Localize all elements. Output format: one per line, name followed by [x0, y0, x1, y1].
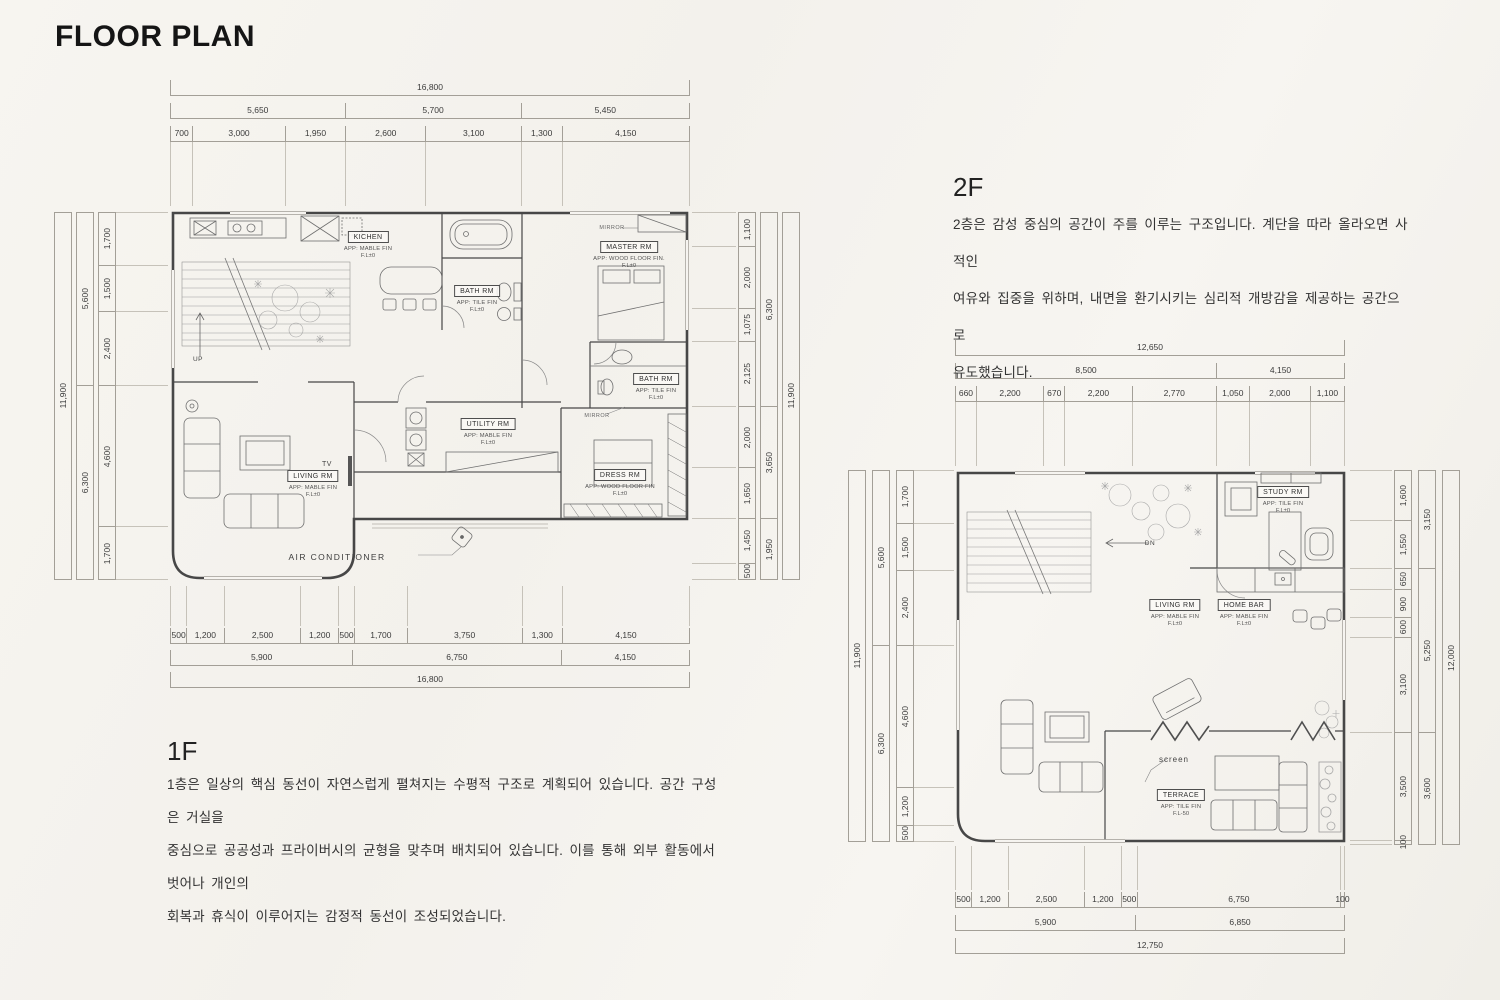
dim-segment: 1,300 — [521, 126, 562, 141]
dim-label: 3,600 — [1423, 778, 1432, 799]
dim-segment: 1,200 — [971, 892, 1008, 907]
dim-tick: 500 — [914, 825, 954, 842]
room-level: F.L±0 — [1276, 508, 1290, 514]
tv-annotation: TV — [322, 461, 332, 468]
room-level: F.L±0 — [361, 253, 375, 259]
dim-label: 500 — [901, 826, 910, 840]
dim-segment: 500 — [897, 825, 913, 842]
dim-label: 500 — [1122, 895, 1136, 904]
dim-label: 4,150 — [615, 129, 636, 138]
dim-label: 5,900 — [251, 653, 272, 662]
dim-label: 4,600 — [901, 706, 910, 727]
dim-segment: 100 — [1395, 840, 1411, 845]
floor-plan-sheet: FLOOR PLAN — [0, 0, 1500, 1000]
dims-1f-right-group: 6,3003,6501,950 — [760, 212, 778, 580]
dim-label: 1,950 — [305, 129, 326, 138]
dim-tick: 100 — [1350, 840, 1392, 845]
dim-segment: 1,950 — [761, 518, 777, 580]
dim-tick: 1,100 — [1310, 402, 1345, 466]
room-name: LIVING RM — [1149, 599, 1200, 611]
floor2-doors — [1217, 570, 1245, 598]
floor1-heading: 1F — [167, 736, 197, 767]
dim-tick: 2,400 — [116, 311, 168, 385]
room-name: TERRACE — [1157, 789, 1205, 801]
dim-tick: 3,500 — [1350, 732, 1392, 840]
dim-segment: 1,950 — [285, 126, 345, 141]
room-label-bath-2: BATH RMAPP: TILE FINF.L±0 — [633, 373, 679, 401]
dim-segment: 6,750 — [1137, 892, 1340, 907]
dim-tick: 1,700 — [914, 470, 954, 523]
room-finish: APP: TILE FIN — [636, 388, 677, 394]
dim-tick: 1,300 — [521, 142, 562, 206]
dim-label: 1,300 — [532, 631, 553, 640]
dims-2f-left-ticks: 1,7001,5002,4004,6001,200500 — [914, 470, 954, 842]
dim-tick: 1,950 — [285, 142, 345, 206]
dim-tick: 4,150 — [562, 586, 690, 626]
room-name: BATH RM — [633, 373, 679, 385]
dim-tick: 2,500 — [224, 586, 301, 626]
dim-label: 1,075 — [743, 314, 752, 335]
dim-segment: 500 — [955, 892, 971, 907]
dim-label: 5,650 — [247, 106, 268, 115]
page-title: FLOOR PLAN — [55, 20, 255, 54]
dim-label: 2,400 — [103, 338, 112, 359]
dim-segment: 5,600 — [77, 212, 93, 385]
dim-label: 1,550 — [1399, 534, 1408, 555]
dim-segment: 1,550 — [1395, 520, 1411, 568]
dim-label: 4,150 — [615, 653, 636, 662]
mirror-annotation-mid: MIRROR — [584, 413, 609, 419]
room-name: STUDY RM — [1257, 486, 1309, 498]
dim-label: 500 — [339, 631, 353, 640]
dim-tick: 900 — [1350, 589, 1392, 617]
dim-tick: 670 — [1043, 402, 1064, 466]
dim-label: 3,100 — [1399, 674, 1408, 695]
dim-segment: 1,500 — [99, 265, 115, 312]
dim-label: 5,900 — [1035, 918, 1056, 927]
dim-tick: 2,500 — [1008, 846, 1084, 890]
room-name: BATH RM — [454, 285, 500, 297]
dim-segment: 5,450 — [521, 103, 690, 118]
dim-segment: 500 — [170, 628, 186, 643]
room-label-utility: UTILITY RMAPP: MABLE FINF.L±0 — [461, 418, 516, 446]
dim-label: 1,200 — [979, 895, 1000, 904]
air-conditioner-annotation: AIR CONDITIONER — [288, 552, 385, 562]
room-label-bath-1: BATH RMAPP: TILE FINF.L±0 — [454, 285, 500, 313]
dims-1f-top-detail: 7003,0001,9502,6003,1001,3004,150 — [170, 126, 690, 142]
dim-tick: 1,500 — [116, 265, 168, 312]
dim-tick: 1,200 — [300, 586, 337, 626]
dim-tick: 1,075 — [692, 308, 736, 341]
dim-tick: 4,600 — [914, 645, 954, 787]
dims-2f-right-ticks: 1,6001,5506509006003,1003,500100 — [1350, 470, 1392, 845]
room-finish: APP: MABLE FIN — [464, 433, 512, 439]
room-finish: APP: WOOD FLOOR FIN — [585, 484, 655, 490]
dim-label: 6,750 — [446, 653, 467, 662]
dim-segment: 1,200 — [186, 628, 223, 643]
dim-tick: 1,050 — [1216, 402, 1249, 466]
dims-1f-bottom-ticks: 5001,2002,5001,2005001,7003,7501,3004,15… — [170, 586, 690, 626]
dim-segment: 5,600 — [873, 470, 889, 645]
dim-segment: 4,600 — [99, 385, 115, 526]
dims-1f-bottom-group: 5,9006,7504,150 — [170, 650, 690, 666]
dim-label: 500 — [956, 895, 970, 904]
dim-tick: 1,700 — [354, 586, 407, 626]
dim-label: 700 — [175, 129, 189, 138]
dim-segment: 6,300 — [761, 212, 777, 406]
dim-label: 6,300 — [765, 299, 774, 320]
room-finish: APP: MABLE FIN — [1151, 614, 1199, 620]
dim-tick: 4,150 — [562, 142, 690, 206]
room-level: F.L-50 — [1173, 811, 1189, 817]
room-label-dress: DRESS RMAPP: WOOD FLOOR FINF.L±0 — [585, 469, 655, 497]
room-finish: APP: TILE FIN — [1161, 804, 1202, 810]
dim-tick: 1,200 — [971, 846, 1008, 890]
dim-label: 5,700 — [422, 106, 443, 115]
dim-segment: 500 — [1121, 892, 1137, 907]
dim-tick: 3,100 — [425, 142, 520, 206]
dims-2f-left-detail: 1,7001,5002,4004,6001,200500 — [896, 470, 914, 842]
room-label-home-bar: HOME BARAPP: MABLE FINF.L±0 — [1218, 599, 1271, 627]
dim-tick: 500 — [338, 586, 354, 626]
dim-label: 12,000 — [1447, 645, 1456, 671]
dim-tick: 2,400 — [914, 570, 954, 645]
dim-segment: 4,600 — [897, 645, 913, 787]
dims-1f-bottom-detail: 5001,2002,5001,2005001,7003,7501,3004,15… — [170, 628, 690, 644]
dim-label: 6,300 — [877, 733, 886, 754]
dim-tick: 2,000 — [692, 406, 736, 467]
dim-segment: 6,750 — [352, 650, 560, 665]
dim-label: 1,700 — [103, 543, 112, 564]
dim-segment: 3,100 — [425, 126, 520, 141]
dim-segment: 1,200 — [300, 628, 337, 643]
room-label-living-1f: LIVING RMAPP: MABLE FINF.L±0 — [287, 470, 338, 498]
dim-segment: 500 — [338, 628, 354, 643]
dim-label: 12,750 — [1137, 941, 1163, 950]
dim-label: 4,150 — [615, 631, 636, 640]
dim-tick: 2,125 — [692, 341, 736, 406]
dim-segment: 5,900 — [170, 650, 352, 665]
dim-segment: 1,700 — [354, 628, 407, 643]
dim-label: 1,100 — [743, 219, 752, 240]
dim-label: 2,500 — [1036, 895, 1057, 904]
dim-label: 3,150 — [1423, 509, 1432, 530]
dim-label: 500 — [171, 631, 185, 640]
dim-tick: 1,200 — [914, 787, 954, 825]
floor2-terrace-furniture — [1211, 756, 1341, 832]
dim-tick: 2,770 — [1132, 402, 1216, 466]
dim-segment: 2,000 — [739, 246, 755, 307]
dim-tick: 1,100 — [692, 212, 736, 246]
dim-segment: 3,750 — [407, 628, 522, 643]
floor2-stairs — [967, 510, 1148, 594]
dim-label: 11,900 — [59, 383, 68, 408]
dim-segment: 3,150 — [1419, 470, 1435, 568]
dim-label: 2,600 — [375, 129, 396, 138]
dim-segment: 2,400 — [99, 311, 115, 385]
dim-label: 1,700 — [103, 228, 112, 249]
dim-label: 2,125 — [743, 363, 752, 384]
dims-2f-right-total: 12,000 — [1442, 470, 1460, 845]
dim-label: 1,200 — [309, 631, 330, 640]
dim-tick: 1,200 — [186, 586, 223, 626]
dim-label: 16,800 — [417, 675, 443, 684]
dim-tick: 500 — [692, 563, 736, 580]
dim-segment: 1,600 — [1395, 470, 1411, 520]
dim-tick: 2,600 — [345, 142, 425, 206]
dim-segment: 2,500 — [224, 628, 301, 643]
room-name: MASTER RM — [600, 241, 658, 253]
dims-2f-bottom-total: 12,750 — [955, 938, 1345, 954]
dim-label: 3,100 — [463, 129, 484, 138]
dim-label: 500 — [743, 564, 752, 578]
dim-label: 650 — [1399, 572, 1408, 586]
dim-tick: 500 — [170, 586, 186, 626]
floor2-windows — [957, 472, 1346, 843]
floor1-plants — [254, 280, 335, 343]
dim-label: 6,750 — [1228, 895, 1249, 904]
floor2-plan-drawing — [955, 470, 1347, 845]
dim-segment: 3,100 — [1395, 637, 1411, 733]
dims-1f-top-total: 16,800 — [170, 80, 690, 96]
screen-annotation: screen — [1159, 755, 1189, 764]
floor2-heading: 2F — [953, 172, 983, 203]
dim-segment: 3,650 — [761, 406, 777, 519]
dims-2f-right-group: 3,1505,2503,600 — [1418, 470, 1436, 845]
dim-tick: 600 — [1350, 617, 1392, 636]
dim-label: 2,400 — [901, 597, 910, 618]
dim-tick: 2,000 — [1249, 402, 1310, 466]
dim-segment: 5,900 — [955, 915, 1135, 930]
room-level: F.L±0 — [622, 263, 636, 269]
room-level: F.L±0 — [649, 395, 663, 401]
room-finish: APP: WOOD FLOOR FIN. — [593, 256, 665, 262]
dim-segment: 3,600 — [1419, 732, 1435, 845]
dim-segment: 1,300 — [522, 628, 562, 643]
dims-2f-bottom-group: 5,9006,850 — [955, 915, 1345, 931]
dim-label: 16,800 — [417, 83, 443, 92]
dim-segment: 700 — [170, 126, 192, 141]
dims-2f-bottom-ticks: 5001,2002,5001,2005006,750100 — [955, 846, 1345, 890]
dim-label: 6,300 — [81, 472, 90, 493]
dim-tick: 4,600 — [116, 385, 168, 526]
room-name: UTILITY RM — [461, 418, 516, 430]
dim-segment: 2,500 — [1008, 892, 1084, 907]
dim-tick: 3,750 — [407, 586, 522, 626]
dim-label: 900 — [1399, 597, 1408, 611]
dim-segment: 2,125 — [739, 341, 755, 406]
dim-label: 4,600 — [103, 446, 112, 467]
dim-tick: 1,450 — [692, 518, 736, 563]
floor1-leader-lines — [418, 228, 638, 555]
dim-label: 11,900 — [853, 643, 862, 668]
room-name: LIVING RM — [287, 470, 338, 482]
dim-label: 11,900 — [787, 383, 796, 408]
dims-2f-bottom-detail: 5001,2002,5001,2005006,750100 — [955, 892, 1345, 908]
room-finish: APP: TILE FIN — [457, 300, 498, 306]
dim-tick: 700 — [170, 142, 192, 206]
dim-segment: 12,750 — [955, 938, 1345, 953]
dim-tick: 3,000 — [192, 142, 284, 206]
dim-label: 3,750 — [454, 631, 475, 640]
dim-label: 600 — [1399, 620, 1408, 634]
dim-label: 100 — [1399, 835, 1408, 849]
room-label-study: STUDY RMAPP: TILE FINF.L±0 — [1257, 486, 1309, 514]
floor2-description: 2층은 감성 중심의 공간이 주를 이루는 구조입니다. 계단을 따라 올라오면… — [953, 206, 1408, 391]
dim-tick: 100 — [1340, 846, 1345, 890]
room-label-kichen: KICHENAPP: MABLE FINF.L±0 — [344, 231, 392, 259]
dim-segment: 12,000 — [1443, 470, 1459, 845]
dim-segment: 1,450 — [739, 518, 755, 563]
room-label-living-2f: LIVING RMAPP: MABLE FINF.L±0 — [1149, 599, 1200, 627]
dim-segment: 1,200 — [897, 787, 913, 825]
dims-1f-top-group: 5,6505,7005,450 — [170, 103, 690, 119]
floor1-master-furniture — [598, 215, 686, 340]
dims-2f-left-group: 5,6006,300 — [872, 470, 890, 842]
dim-tick: 1,550 — [1350, 520, 1392, 568]
dim-tick: 6,750 — [1137, 846, 1340, 890]
dim-tick: 2,200 — [976, 402, 1043, 466]
dim-segment: 1,650 — [739, 467, 755, 518]
dims-2f-top-ticks: 6602,2006702,2002,7701,0502,0001,100 — [955, 402, 1345, 466]
floor2-walls — [958, 473, 1344, 841]
dim-segment: 11,900 — [783, 212, 799, 580]
dim-segment: 5,250 — [1419, 568, 1435, 731]
dim-tick: 1,200 — [1084, 846, 1121, 890]
dim-label: 5,600 — [81, 288, 90, 309]
dim-label: 100 — [1335, 895, 1349, 904]
dim-label: 1,650 — [743, 483, 752, 504]
dim-label: 1,500 — [901, 537, 910, 558]
dim-segment: 3,000 — [192, 126, 284, 141]
dim-segment: 600 — [1395, 617, 1411, 636]
dim-segment: 1,075 — [739, 308, 755, 341]
dim-label: 1,200 — [1092, 895, 1113, 904]
dim-segment: 4,150 — [562, 628, 690, 643]
dim-tick: 2,000 — [692, 246, 736, 307]
dim-tick: 650 — [1350, 568, 1392, 589]
dim-label: 6,850 — [1229, 918, 1250, 927]
dim-label: 1,700 — [901, 486, 910, 507]
dim-label: 1,300 — [531, 129, 552, 138]
dim-segment: 1,700 — [99, 212, 115, 265]
dims-1f-right-ticks: 1,1002,0001,0752,1252,0001,6501,450500 — [692, 212, 736, 580]
dim-tick: 660 — [955, 402, 976, 466]
dim-segment: 1,100 — [739, 212, 755, 246]
dims-1f-left-group: 5,6006,300 — [76, 212, 94, 580]
dim-segment: 900 — [1395, 589, 1411, 617]
dim-segment: 6,300 — [77, 385, 93, 580]
dim-tick: 1,650 — [692, 467, 736, 518]
dim-tick: 1,600 — [1350, 470, 1392, 520]
dims-1f-left-total: 11,900 — [54, 212, 72, 580]
dim-segment: 650 — [1395, 568, 1411, 589]
room-finish: APP: MABLE FIN — [344, 246, 392, 252]
dim-label: 2,500 — [252, 631, 273, 640]
dim-label: 5,250 — [1423, 640, 1432, 661]
dim-segment: 2,400 — [897, 570, 913, 645]
dim-segment: 1,500 — [897, 523, 913, 570]
dim-segment: 16,800 — [170, 672, 690, 687]
dim-segment: 6,300 — [873, 645, 889, 842]
dims-1f-top-ticks: 7003,0001,9502,6003,1001,3004,150 — [170, 142, 690, 206]
dim-segment: 4,150 — [561, 650, 690, 665]
dim-label: 1,950 — [765, 539, 774, 560]
dim-segment: 100 — [1340, 892, 1345, 907]
dim-label: 5,600 — [877, 547, 886, 568]
room-level: F.L±0 — [613, 491, 627, 497]
dim-label: 1,200 — [195, 631, 216, 640]
dim-segment: 3,500 — [1395, 732, 1411, 840]
dim-segment: 5,650 — [170, 103, 345, 118]
dim-label: 2,000 — [743, 427, 752, 448]
dims-1f-right-total: 11,900 — [782, 212, 800, 580]
room-label-terrace: TERRACEAPP: TILE FINF.L-50 — [1157, 789, 1205, 817]
dim-tick: 1,500 — [914, 523, 954, 570]
dim-segment: 4,150 — [562, 126, 690, 141]
dim-tick: 3,100 — [1350, 637, 1392, 733]
room-finish: APP: MABLE FIN — [1220, 614, 1268, 620]
dim-tick: 1,700 — [116, 526, 168, 580]
floor1-stairs — [182, 258, 350, 356]
dn-annotation: DN — [1145, 540, 1155, 547]
dim-tick: 1,300 — [522, 586, 562, 626]
dim-label: 1,500 — [103, 278, 112, 299]
room-level: F.L±0 — [481, 440, 495, 446]
room-level: F.L±0 — [1237, 621, 1251, 627]
dim-segment: 11,900 — [849, 470, 865, 842]
dim-tick: 2,200 — [1064, 402, 1131, 466]
room-name: KICHEN — [348, 231, 389, 243]
dims-2f-left-total: 11,900 — [848, 470, 866, 842]
dim-label: 1,200 — [901, 796, 910, 817]
floor1-kitchen-fixtures — [190, 216, 442, 310]
floor1-description: 1층은 일상의 핵심 동선이 자연스럽게 펼쳐지는 수평적 구조로 계획되어 있… — [167, 768, 722, 933]
dim-label: 5,450 — [595, 106, 616, 115]
mirror-annotation-top: MIRROR — [599, 225, 624, 231]
dim-segment: 11,900 — [55, 212, 71, 580]
room-finish: APP: MABLE FIN — [289, 485, 337, 491]
dim-segment: 1,700 — [99, 526, 115, 580]
dim-label: 1,450 — [743, 530, 752, 551]
room-level: F.L±0 — [470, 307, 484, 313]
dim-segment: 2,000 — [739, 406, 755, 467]
dims-2f-right-detail: 1,6001,5506509006003,1003,500100 — [1394, 470, 1412, 845]
dim-label: 1,600 — [1399, 485, 1408, 506]
dims-1f-left-ticks: 1,7001,5002,4004,6001,700 — [116, 212, 168, 580]
dim-segment: 2,600 — [345, 126, 425, 141]
room-level: F.L±0 — [306, 492, 320, 498]
up-annotation: UP — [193, 356, 203, 363]
dim-segment: 5,700 — [345, 103, 521, 118]
room-name: DRESS RM — [594, 469, 646, 481]
dim-segment: 500 — [739, 563, 755, 580]
dim-label: 3,000 — [228, 129, 249, 138]
dims-1f-right-detail: 1,1002,0001,0752,1252,0001,6501,450500 — [738, 212, 756, 580]
room-level: F.L±0 — [1168, 621, 1182, 627]
dims-1f-left-detail: 1,7001,5002,4004,6001,700 — [98, 212, 116, 580]
dim-segment: 16,800 — [170, 80, 690, 95]
dim-label: 1,700 — [370, 631, 391, 640]
room-name: HOME BAR — [1218, 599, 1271, 611]
dims-1f-bottom-total: 16,800 — [170, 672, 690, 688]
dim-segment: 1,700 — [897, 470, 913, 523]
room-label-master: MASTER RMAPP: WOOD FLOOR FIN.F.L±0 — [593, 241, 665, 269]
dim-label: 2,000 — [743, 267, 752, 288]
floor1-dress-furniture — [564, 414, 686, 517]
dim-tick: 500 — [955, 846, 971, 890]
dim-tick: 1,700 — [116, 212, 168, 265]
